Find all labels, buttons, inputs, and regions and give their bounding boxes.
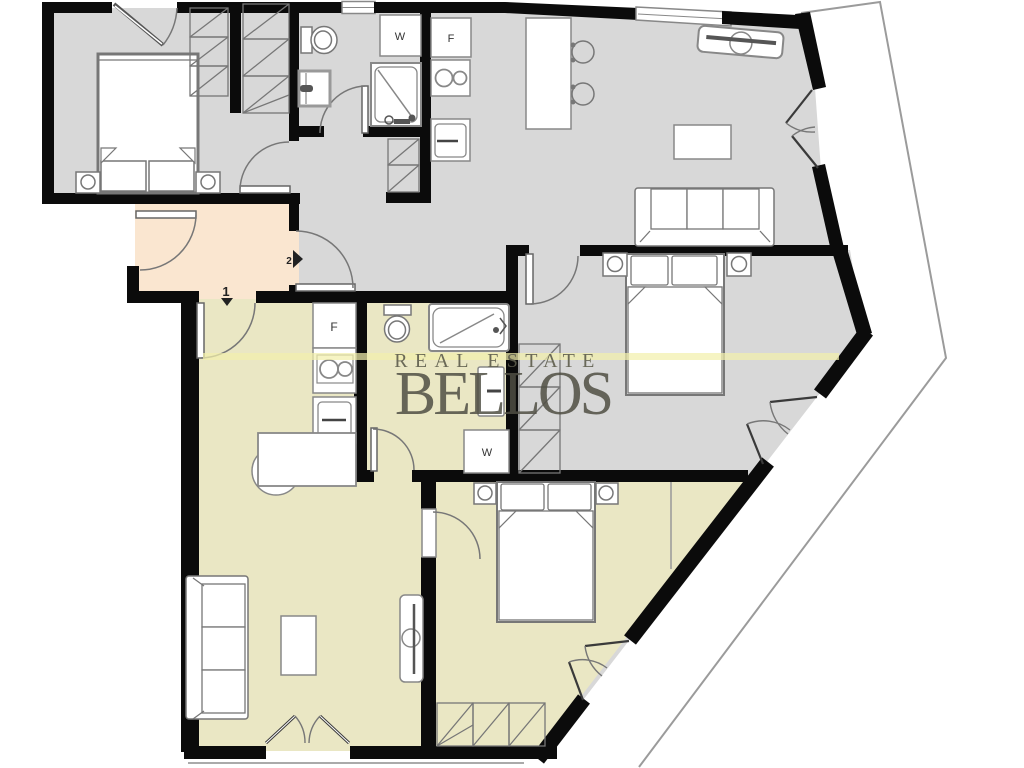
svg-text:W: W [395,31,406,43]
svg-text:F: F [330,320,337,334]
svg-text:F: F [448,33,455,45]
svg-text:2: 2 [286,256,292,267]
svg-text:1: 1 [222,284,229,299]
svg-text:BELLOS: BELLOS [395,360,611,428]
svg-text:W: W [482,447,493,459]
